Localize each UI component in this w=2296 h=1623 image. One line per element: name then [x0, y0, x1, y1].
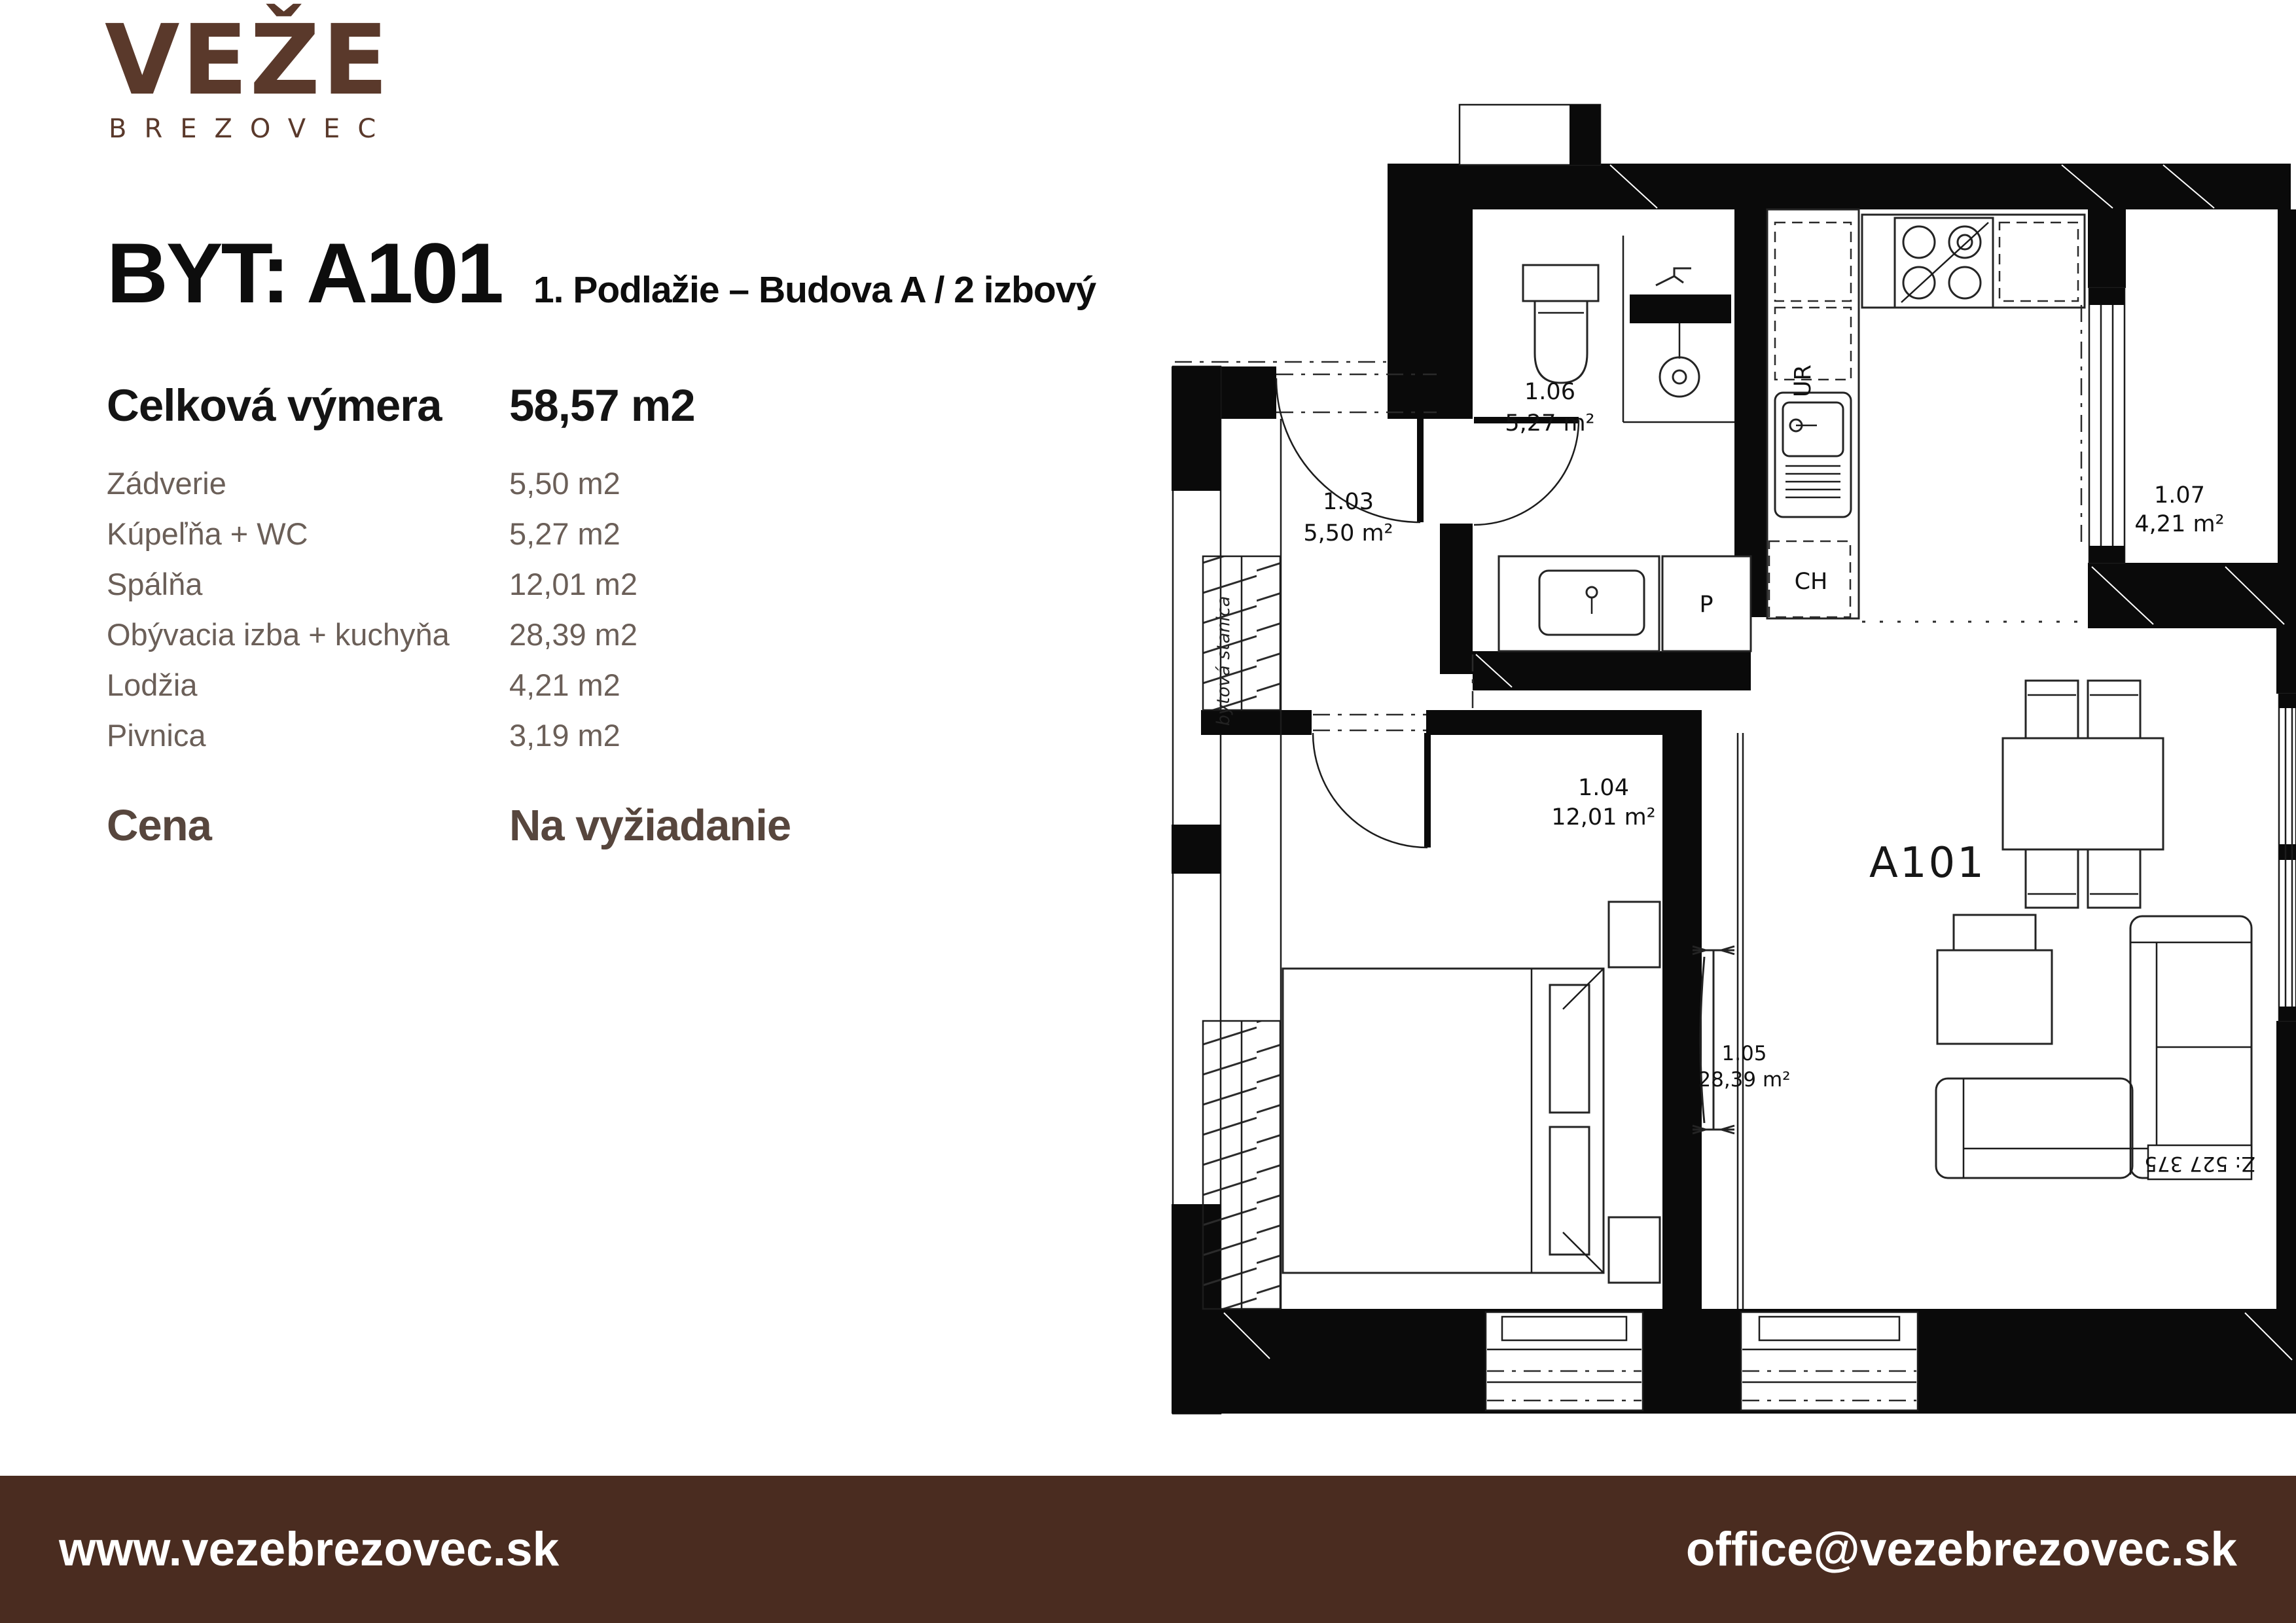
footer-bar: www.vezebrezovec.sk office@vezebrezovec.… [0, 1476, 2296, 1623]
floor-plan: bytová stanica [0, 0, 2296, 1623]
armchair-icon [1937, 915, 2052, 1044]
room-id-bedroom: 1.04 [1578, 775, 1629, 801]
shower-icon [1623, 236, 1734, 422]
room-id-loggia: 1.07 [2154, 482, 2205, 508]
flyer-page: VEŽE BREZOVEC BYT: A101 1. Podlažie – Bu… [0, 0, 2296, 1623]
washer-label: P [1699, 592, 1713, 618]
drawing-number: Z: 527 375 [2144, 1152, 2255, 1175]
living-room-window [2279, 694, 2296, 1021]
footer-email: office@vezebrezovec.sk [1686, 1522, 2237, 1577]
room-id-living: 1.05 [1721, 1042, 1767, 1065]
room-area-living: 28,39 m² [1698, 1068, 1790, 1092]
drawing-number-box: Z: 527 375 [2144, 1145, 2255, 1179]
living-bottom-window [1741, 1312, 1918, 1410]
dining-table-icon [2003, 681, 2163, 908]
toilet-icon [1523, 265, 1598, 383]
bed-icon [1283, 969, 1604, 1273]
nightstand-icon [1609, 1217, 1660, 1283]
footer-website: www.vezebrezovec.sk [59, 1522, 559, 1577]
washer-icon: P [1662, 556, 1751, 651]
fridge-icon: CH [1769, 541, 1850, 617]
room-area-loggia: 4,21 m² [2134, 511, 2224, 537]
bedroom-door [1313, 733, 1427, 847]
sink-icon: UR [1775, 365, 1851, 517]
washbasin-icon [1499, 556, 1659, 651]
room-area-bathroom: 5,27 m² [1505, 410, 1594, 437]
stove-icon [1862, 215, 2085, 308]
fridge-label: CH [1795, 569, 1828, 595]
apartment-plan-label: A101 [1869, 839, 1986, 887]
sink-label: UR [1790, 365, 1816, 397]
loggia-window [2081, 288, 2125, 563]
nightstand-icon [1609, 902, 1660, 967]
bedroom-bottom-window [1486, 1312, 1643, 1410]
room-id-hall: 1.03 [1323, 489, 1374, 515]
room-area-hall: 5,50 m² [1303, 520, 1393, 546]
tech-room-label: bytová stanica [1213, 596, 1234, 726]
room-area-bedroom: 12,01 m² [1551, 804, 1655, 830]
room-id-bathroom: 1.06 [1524, 379, 1575, 405]
